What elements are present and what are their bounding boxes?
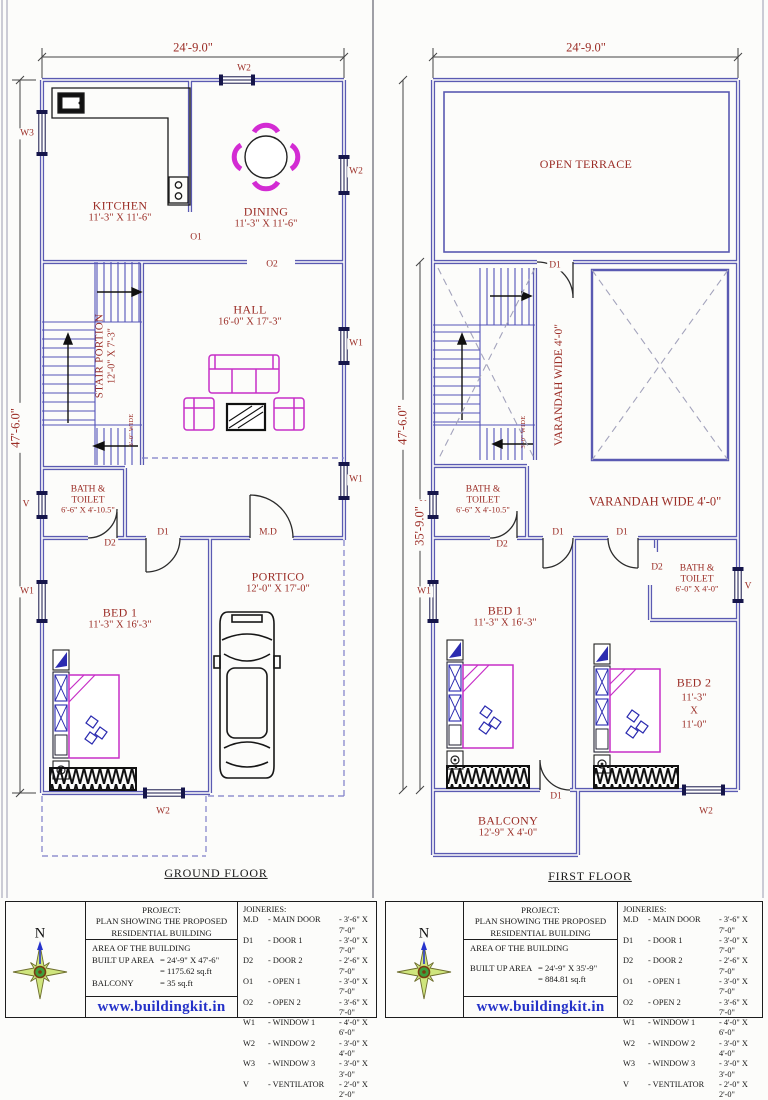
area-box: AREA OF THE BUILDING BUILT UP AREA= 24'-…	[86, 940, 237, 997]
window-w2-first-bottom	[683, 785, 725, 795]
balcony-dim: 12'-9" X 4'-0"	[478, 828, 538, 840]
project-box: PROJECT: PLAN SHOWING THE PROPOSED RESID…	[464, 902, 617, 940]
ventilator-first-left	[428, 492, 438, 519]
joinery-row: V- VENTILATOR- 2'-0" X 2'-0"	[243, 1080, 376, 1100]
window-label-w2-top: W2	[235, 63, 253, 74]
website-link: www.buildingkit.in	[86, 997, 237, 1016]
joinery-row: O2- OPEN 2- 3'-6" X 7'-0"	[243, 998, 376, 1019]
dining-name: DINING	[235, 205, 298, 219]
joineries-cell: JOINERIES: M.D- MAIN DOOR- 3'-6" X 7'-0"…	[238, 902, 376, 1017]
window-w2-top	[220, 75, 255, 85]
joinery-code: W2	[623, 1039, 648, 1060]
joinery-name: - OPEN 2	[268, 998, 339, 1019]
joinery-row: M.D- MAIN DOOR- 3'-6" X 7'-0"	[243, 915, 376, 936]
joinery-name: - MAIN DOOR	[648, 915, 719, 936]
joinery-row: D2- DOOR 2- 2'-6" X 7'-0"	[243, 956, 376, 977]
project-line2: RESIDENTIAL BUILDING	[464, 928, 617, 939]
bed1-dim: 11'-3" X 16'-3"	[88, 620, 151, 632]
stair-name: STAIR PORTION	[94, 314, 107, 399]
joinery-name: - DOOR 2	[648, 956, 719, 977]
dining-dim: 11'-3" X 11'-6"	[235, 219, 298, 231]
area-label	[470, 974, 538, 986]
area-title: AREA OF THE BUILDING	[92, 943, 237, 955]
opening-label-o1: O1	[188, 232, 204, 243]
joinery-size: - 3'-0" X 7'-0"	[719, 936, 762, 957]
bath-dim: 6'-6" X 4'-10.5"	[61, 506, 115, 516]
hall-dim: 16'-0" X 17'-3"	[218, 317, 282, 329]
project-title: PROJECT:	[86, 905, 237, 916]
window-label-w1-left: W1	[18, 586, 36, 597]
joinery-name: - OPEN 1	[268, 977, 339, 998]
joinery-name: - OPEN 2	[648, 998, 719, 1019]
area-value: = 35 sq.ft	[160, 978, 237, 990]
bed1-name: BED 1	[88, 606, 151, 620]
joinery-size: - 4'-0" X 6'-0"	[339, 1018, 376, 1039]
project-cell: PROJECT: PLAN SHOWING THE PROPOSED RESID…	[86, 902, 238, 1017]
joinery-size: - 3'-6" X 7'-0"	[339, 915, 376, 936]
terrace-parapet	[444, 92, 729, 252]
door-label-d2-bath2: D2	[649, 562, 665, 573]
joinery-code: D2	[623, 956, 648, 977]
first-inner-height-dimension: 35'-9.0"	[413, 501, 428, 551]
title-block-first: PROJECT: PLAN SHOWING THE PROPOSED RESID…	[385, 901, 763, 1018]
door-label-d1: D1	[155, 527, 171, 538]
bed2-dim1: 11'-3"	[677, 691, 712, 705]
area-row: BUILT UP AREA= 24'-9" X 35'-9"	[470, 963, 617, 975]
bath2-line1: BATH &	[675, 564, 718, 575]
ground-floor-caption: GROUND FLOOR	[164, 866, 267, 880]
joinery-code: D1	[623, 936, 648, 957]
area-value: = 884.81 sq.ft	[538, 974, 617, 986]
window-label-w2-right: W2	[347, 166, 365, 177]
joinery-row: O1- OPEN 1- 3'-0" X 7'-0"	[243, 977, 376, 998]
joinery-code: O1	[623, 977, 648, 998]
joinery-code: O1	[243, 977, 268, 998]
north-label-left: N	[35, 926, 45, 943]
joinery-size: - 3'-0" X 7'-0"	[719, 977, 762, 998]
website-link: www.buildingkit.in	[464, 997, 617, 1016]
joinery-size: - 4'-0" X 6'-0"	[719, 1018, 762, 1039]
area-value: = 24'-9" X 47'-6"	[160, 955, 237, 967]
joinery-size: - 3'-6" X 7'-0"	[719, 915, 762, 936]
door-label-d1-terrace: D1	[547, 260, 563, 271]
room-label-stair-portion: STAIR PORTION 12'-0" X 7'-3"	[94, 314, 119, 399]
joinery-row: W1- WINDOW 1- 4'-0" X 6'-0"	[243, 1018, 376, 1039]
portico-name: PORTICO	[246, 570, 310, 584]
room-label-bed1: BED 1 11'-3" X 16'-3"	[88, 606, 151, 633]
bath2-dim: 6'-0" X 4'-0"	[675, 585, 718, 595]
window-label-w2-bottom: W2	[154, 806, 172, 817]
room-label-kitchen: KITCHEN 11'-3" X 11'-6"	[89, 199, 152, 226]
joinery-size: - 3'-0" X 7'-0"	[339, 977, 376, 998]
joinery-code: W2	[243, 1039, 268, 1060]
joinery-row: D2- DOOR 2- 2'-6" X 7'-0"	[623, 956, 762, 977]
joinery-row: W2- WINDOW 2- 3'-0" X 4'-0"	[623, 1039, 762, 1060]
bed1-first-dim: 11'-3" X 16'-3"	[473, 618, 536, 630]
project-title: PROJECT:	[464, 905, 617, 916]
sheet-borders	[2, 0, 763, 898]
joinery-name: - WINDOW 2	[268, 1039, 339, 1060]
dining-table-icon	[234, 125, 298, 189]
joinery-row: O2- OPEN 2- 3'-6" X 7'-0"	[623, 998, 762, 1019]
joinery-code: W3	[623, 1059, 648, 1080]
joinery-row: D1- DOOR 1- 3'-0" X 7'-0"	[243, 936, 376, 957]
joinery-name: - WINDOW 2	[648, 1039, 719, 1060]
window-w1-left	[37, 581, 47, 623]
room-label-balcony: BALCONY 12'-9" X 4'-0"	[478, 814, 538, 841]
area-row: BALCONY= 35 sq.ft	[92, 978, 237, 990]
balcony-name: BALCONY	[478, 814, 538, 828]
door-label-d1-balcony: D1	[548, 791, 564, 802]
varandah-vertical-label: VARANDAH WIDE 4'-0"	[553, 324, 567, 446]
floor-plan-drawing	[0, 0, 768, 1024]
joinery-name: - WINDOW 1	[648, 1018, 719, 1039]
door-label-d2-first: D2	[494, 539, 510, 550]
ventilator-label-first-right: V	[743, 581, 754, 592]
compass-cell	[6, 902, 86, 1017]
joinery-code: W1	[243, 1018, 268, 1039]
joineries-title: JOINERIES:	[623, 905, 762, 915]
opening-label-o2: O2	[264, 259, 280, 270]
bed2-dim2: X	[677, 705, 712, 719]
area-row: = 1175.62 sq.ft	[92, 966, 237, 978]
project-line2: RESIDENTIAL BUILDING	[86, 928, 237, 939]
room-label-bath: BATH & TOILET 6'-6" X 4'-10.5"	[61, 485, 115, 516]
area-box: AREA OF THE BUILDING BUILT UP AREA= 24'-…	[464, 940, 617, 997]
room-label-bed1-first: BED 1 11'-3" X 16'-3"	[473, 604, 536, 631]
room-label-bath2: BATH & TOILET 6'-0" X 4'-0"	[675, 564, 718, 595]
area-label: BALCONY	[92, 978, 160, 990]
first-outer-height-dimension: 47'-6.0"	[396, 400, 411, 450]
project-line1: PLAN SHOWING THE PROPOSED	[464, 916, 617, 927]
joinery-size: - 3'-0" X 3'-0"	[339, 1059, 376, 1080]
room-label-open-terrace: OPEN TERRACE	[540, 157, 632, 171]
joinery-size: - 2'-6" X 7'-0"	[719, 956, 762, 977]
joinery-size: - 2'-0" X 2'-0"	[339, 1080, 376, 1100]
window-label-w2-first-bottom: W2	[697, 806, 715, 817]
window-label-w1-right-b: W1	[347, 474, 365, 485]
joinery-name: - MAIN DOOR	[268, 915, 339, 936]
window-label-w1-right-a: W1	[347, 338, 365, 349]
kitchen-counter-icon	[52, 88, 190, 205]
project-box: PROJECT: PLAN SHOWING THE PROPOSED RESID…	[86, 902, 237, 940]
ventilator-left	[37, 492, 47, 519]
joinery-size: - 3'-0" X 3'-0"	[719, 1059, 762, 1080]
area-value: = 24'-9" X 35'-9"	[538, 963, 617, 975]
joinery-size: - 3'-0" X 4'-0"	[339, 1039, 376, 1060]
bath-line1: BATH &	[61, 485, 115, 496]
bath1-dim: 6'-6" X 4'-10.5"	[456, 506, 510, 516]
door-label-d1-bed1: D1	[550, 527, 566, 538]
joinery-code: D1	[243, 936, 268, 957]
ventilator-label: V	[21, 499, 32, 510]
joinery-code: M.D	[623, 915, 648, 936]
project-cell: PROJECT: PLAN SHOWING THE PROPOSED RESID…	[464, 902, 618, 1017]
stair-width-note: 3'-0" WIDE	[128, 414, 136, 447]
window-w2-bottom	[144, 788, 185, 798]
joinery-name: - WINDOW 3	[268, 1059, 339, 1080]
joinery-row: D1- DOOR 1- 3'-0" X 7'-0"	[623, 936, 762, 957]
joinery-name: - OPEN 1	[648, 977, 719, 998]
door-label-d2: D2	[102, 538, 118, 549]
area-row: = 884.81 sq.ft	[470, 974, 617, 986]
room-label-portico: PORTICO 12'-0" X 17'-0"	[246, 570, 310, 597]
ground-width-dimension: 24'-9.0"	[168, 41, 218, 56]
joinery-code: W1	[623, 1018, 648, 1039]
area-value: = 1175.62 sq.ft	[160, 966, 237, 978]
window-w3-left	[37, 111, 47, 156]
joineries-title: JOINERIES:	[243, 905, 376, 915]
room-label-dining: DINING 11'-3" X 11'-6"	[235, 205, 298, 232]
joinery-row: W3- WINDOW 3- 3'-0" X 3'-0"	[243, 1059, 376, 1080]
bed2-name: BED 2	[677, 676, 712, 692]
portico-dim: 12'-0" X 17'-0"	[246, 584, 310, 596]
kitchen-name: KITCHEN	[89, 199, 152, 213]
door-label-md: M.D	[257, 527, 279, 538]
area-title: AREA OF THE BUILDING	[470, 943, 617, 955]
compass-cell	[386, 902, 464, 1017]
project-line1: PLAN SHOWING THE PROPOSED	[86, 916, 237, 927]
tv-table-icon	[227, 404, 265, 430]
area-label	[92, 966, 160, 978]
title-block-ground: PROJECT: PLAN SHOWING THE PROPOSED RESID…	[5, 901, 377, 1018]
joinery-row: M.D- MAIN DOOR- 3'-6" X 7'-0"	[623, 915, 762, 936]
area-row: BUILT UP AREA= 24'-9" X 47'-6"	[92, 955, 237, 967]
joinery-row: W3- WINDOW 3- 3'-0" X 3'-0"	[623, 1059, 762, 1080]
joinery-code: M.D	[243, 915, 268, 936]
kitchen-dim: 11'-3" X 11'-6"	[89, 213, 152, 225]
bath1-line1: BATH &	[456, 485, 510, 496]
joinery-row: O1- OPEN 1- 3'-0" X 7'-0"	[623, 977, 762, 998]
joinery-name: - VENTILATOR	[648, 1080, 719, 1100]
joinery-row: W1- WINDOW 1- 4'-0" X 6'-0"	[623, 1018, 762, 1039]
car-icon	[214, 612, 280, 778]
joinery-code: O2	[243, 998, 268, 1019]
ground-height-dimension: 47'-6.0"	[9, 403, 24, 453]
wardrobe-icons	[50, 766, 678, 790]
joinery-name: - VENTILATOR	[268, 1080, 339, 1100]
bed2-dim3: 11'-0"	[677, 719, 712, 733]
joinery-code: W3	[243, 1059, 268, 1080]
joinery-size: - 2'-6" X 7'-0"	[339, 956, 376, 977]
joinery-name: - DOOR 1	[648, 936, 719, 957]
room-label-bed2: BED 2 11'-3" X 11'-0"	[677, 676, 712, 733]
hall-name: HALL	[218, 303, 282, 317]
joinery-code: V	[243, 1080, 268, 1100]
joineries-cell: JOINERIES: M.D- MAIN DOOR- 3'-6" X 7'-0"…	[618, 902, 762, 1017]
window-label-w1-first-left: W1	[415, 586, 433, 597]
first-stair-width-note: 3'-0" WIDE	[520, 416, 528, 449]
first-width-dimension: 24'-9.0"	[561, 41, 611, 56]
varandah-horizontal-label: VARANDAH WIDE 4'-0"	[589, 495, 722, 510]
joinery-name: - DOOR 1	[268, 936, 339, 957]
floor-plan-sheet: { "plans": { "ground": { "caption": "GRO…	[0, 0, 768, 1024]
joinery-row: W2- WINDOW 2- 3'-0" X 4'-0"	[243, 1039, 376, 1060]
joinery-code: V	[623, 1080, 648, 1100]
first-floor-caption: FIRST FLOOR	[548, 869, 632, 883]
window-label-w3: W3	[18, 128, 36, 139]
joinery-code: O2	[623, 998, 648, 1019]
joinery-size: - 3'-0" X 4'-0"	[719, 1039, 762, 1060]
room-label-hall: HALL 16'-0" X 17'-3"	[218, 303, 282, 330]
joinery-size: - 3'-0" X 7'-0"	[339, 936, 376, 957]
joinery-row: V- VENTILATOR- 2'-0" X 2'-0"	[623, 1080, 762, 1100]
door-label-d1-bed2: D1	[614, 527, 630, 538]
north-label-right: N	[419, 926, 429, 943]
joinery-size: - 2'-0" X 2'-0"	[719, 1080, 762, 1100]
joinery-size: - 3'-6" X 7'-0"	[719, 998, 762, 1019]
bed1-first-name: BED 1	[473, 604, 536, 618]
joinery-name: - WINDOW 3	[648, 1059, 719, 1080]
joinery-code: D2	[243, 956, 268, 977]
area-label: BUILT UP AREA	[470, 963, 538, 975]
stair-dim: 12'-0" X 7'-3"	[107, 314, 119, 399]
joinery-size: - 3'-6" X 7'-0"	[339, 998, 376, 1019]
joinery-name: - WINDOW 1	[268, 1018, 339, 1039]
area-label: BUILT UP AREA	[92, 955, 160, 967]
joinery-name: - DOOR 2	[268, 956, 339, 977]
room-label-bath1-first: BATH & TOILET 6'-6" X 4'-10.5"	[456, 485, 510, 516]
ventilator-first-right	[733, 568, 743, 603]
